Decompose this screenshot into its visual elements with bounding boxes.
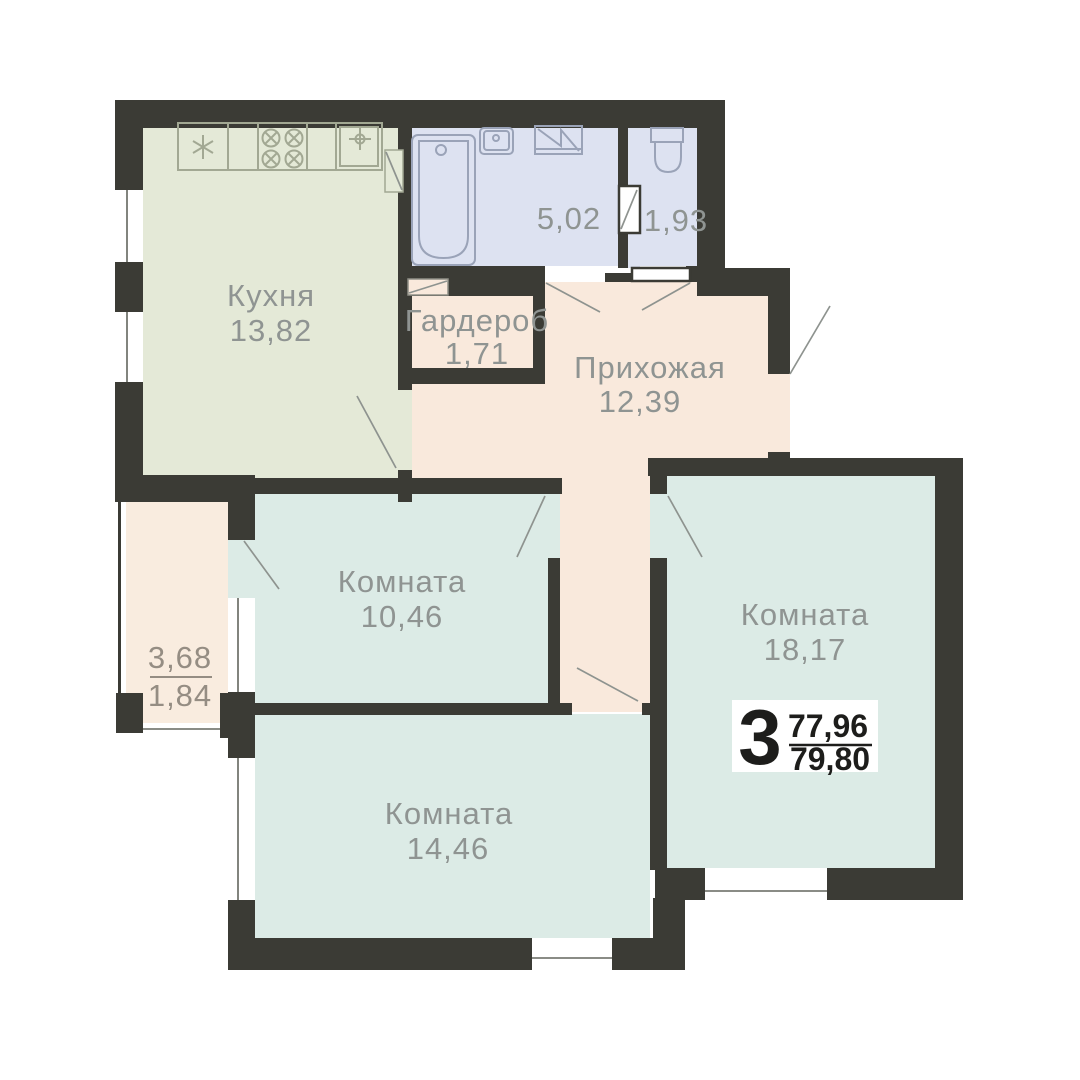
window [228,598,255,692]
kitchen-door-gap [398,390,412,470]
kitchen-label: Кухня [227,278,315,313]
room14-label: Комната [385,796,513,831]
wc-area: 1,93 [644,203,708,238]
washbasin-icon [480,128,513,154]
floor-plan-canvas: Кухня 13,82 5,02 1,93 Гардероб 1,71 Прих… [0,0,1080,1080]
badge-area-lower: 79,80 [790,741,870,777]
entrance-gap [768,374,790,452]
window [532,938,612,970]
window [115,190,143,262]
room14-area: 14,46 [407,831,490,866]
hallway-area: 12,39 [599,384,682,419]
floor-plan: Кухня 13,82 5,02 1,93 Гардероб 1,71 Прих… [0,0,1080,1080]
wardrobe-door-leaf [408,279,448,295]
room10-area: 10,46 [361,599,444,634]
kitchen-area: 13,82 [230,313,313,348]
room18-label: Комната [741,597,869,632]
badge-area-upper: 77,96 [788,708,868,744]
hallway-label: Прихожая [574,350,726,385]
wc-side-door-leaf [619,186,640,233]
badge-rooms-count: 3 [738,693,781,781]
room10-label: Комната [338,564,466,599]
wardrobe-area: 1,71 [445,336,509,371]
window [115,312,143,382]
balcony-area-reduced: 1,84 [148,678,212,713]
window [228,758,255,900]
room18-door-gap [650,494,667,558]
window [705,868,827,900]
room10-door-gap [548,494,560,558]
entrance-door-swing [790,306,830,374]
balcony-area: 3,68 [148,640,212,675]
apartment-badge: 3 77,96 79,80 [732,693,878,781]
corridor-floor [560,458,650,712]
bathroom-floor [412,128,618,268]
window [143,723,220,737]
room18-area: 18,17 [764,632,847,667]
bathroom-area: 5,02 [537,201,601,236]
room18-floor [667,476,935,872]
kitchen-door-leaf [385,150,403,192]
wardrobe-label: Гардероб [405,303,549,338]
balcony-door-gap [228,540,255,598]
